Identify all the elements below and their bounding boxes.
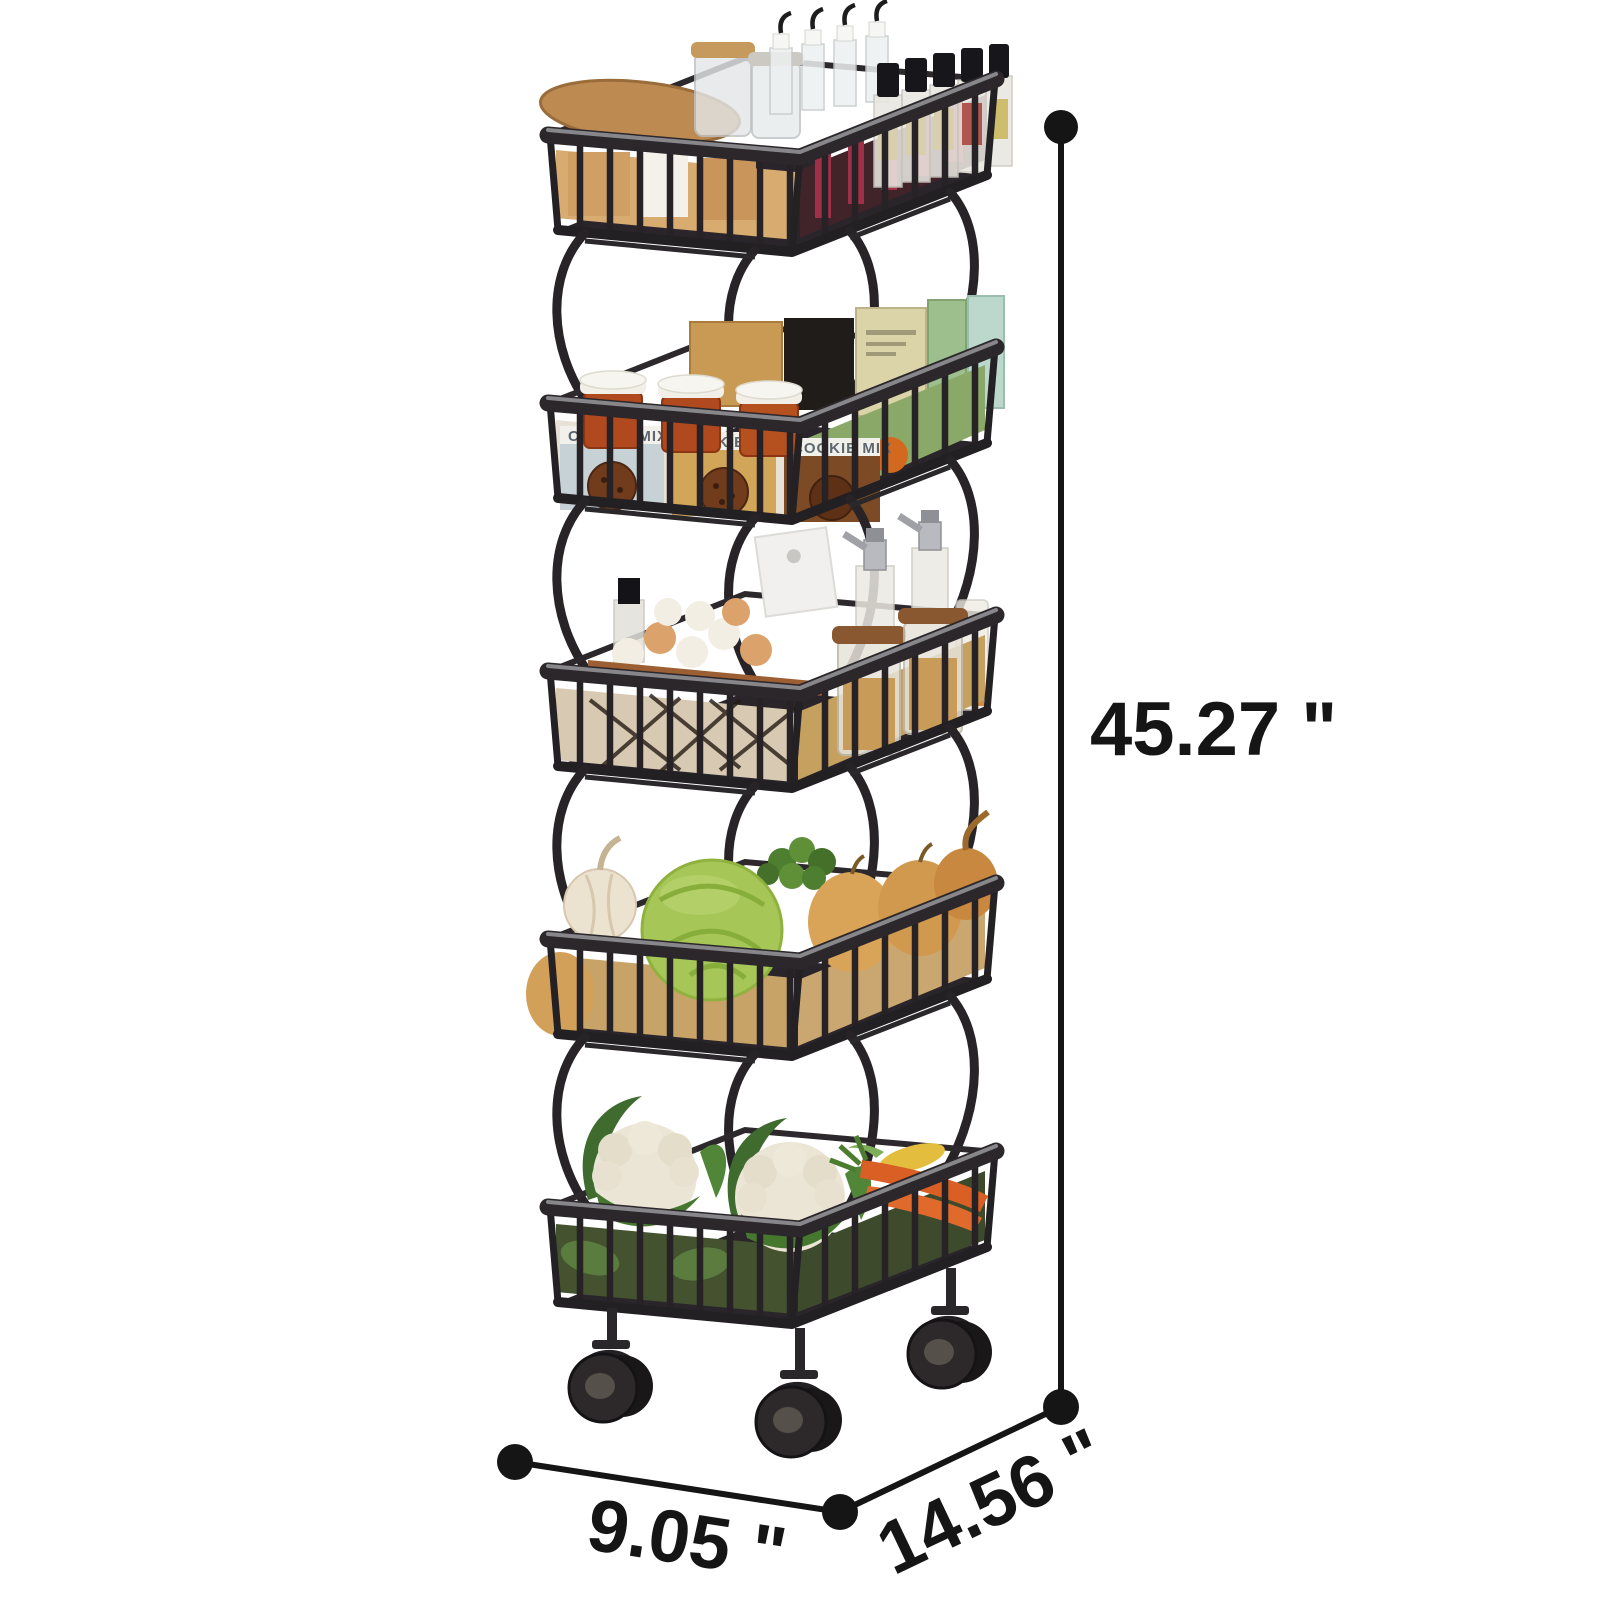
height-dimension: 45.27 " xyxy=(1043,110,1337,1425)
carton-label: COOKIE MIX xyxy=(792,440,892,457)
basket-tier-5 xyxy=(548,1096,996,1324)
height-dimension-label: 45.27 " xyxy=(1090,687,1337,772)
hook-spice-bottles xyxy=(770,1,888,114)
depth-dimension: 14.56 " xyxy=(840,1407,1118,1590)
dimension-endpoint-dot xyxy=(497,1444,533,1480)
dimension-endpoint-dot xyxy=(1044,110,1078,144)
white-jar xyxy=(640,153,688,217)
caster-wheel xyxy=(756,1328,842,1457)
white-box xyxy=(755,527,837,616)
basket-tier-4 xyxy=(526,812,998,1056)
basket-tier-3 xyxy=(548,510,996,788)
width-dimension: 9.05 " xyxy=(497,1444,858,1595)
caster-wheel xyxy=(569,1308,653,1422)
product-illustration: COOKIE MIX COOKIE MIX COOKIE MIX xyxy=(0,0,1600,1600)
garlic xyxy=(564,838,636,941)
product-dimension-image: COOKIE MIX COOKIE MIX COOKIE MIX xyxy=(0,0,1600,1600)
caster-wheel xyxy=(908,1268,992,1388)
basket-tier-1 xyxy=(537,1,1012,252)
parsley xyxy=(757,837,836,890)
basket-tier-2: COOKIE MIX COOKIE MIX COOKIE MIX xyxy=(548,296,1004,522)
